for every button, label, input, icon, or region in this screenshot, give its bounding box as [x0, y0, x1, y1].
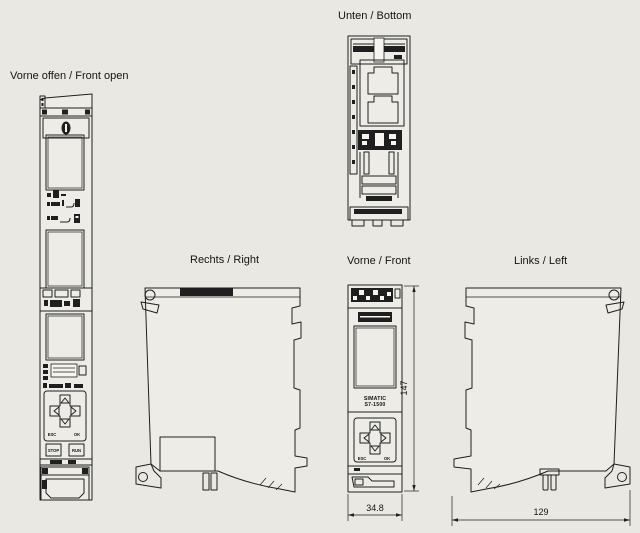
foot-left — [203, 473, 209, 490]
brand-text-line2: S7-1500 — [364, 402, 385, 408]
width-dimension-value: 34.8 — [366, 503, 384, 513]
label-front-open: Vorne offen / Front open — [10, 70, 128, 82]
module-body: ESC OK STOP RUN — [40, 94, 92, 500]
label-front: Vorne / Front — [347, 255, 411, 267]
label-left: Links / Left — [514, 255, 567, 267]
ok-key-label: OK — [74, 432, 80, 437]
power-connector — [358, 130, 402, 150]
foot-right — [211, 473, 217, 490]
dimensional-drawing-canvas: Vorne offen / Front open Unten / Bottom … — [0, 0, 640, 533]
run-key-label: RUN — [72, 448, 81, 453]
stop-key-label: STOP — [48, 448, 60, 453]
label-bar — [358, 312, 392, 322]
left-view-drawing: 129 — [448, 278, 638, 533]
esc-key-label: ESC — [48, 432, 57, 437]
esc-key-label: ESC — [358, 456, 367, 461]
width-dimension: 34.8 — [348, 494, 402, 521]
depth-dimension-value: 129 — [533, 507, 548, 517]
right-view-drawing — [130, 278, 320, 506]
ok-key-label: OK — [384, 456, 390, 461]
module-right-profile — [136, 288, 307, 492]
module-front: SIMATIC S7-1500 ESC OK — [348, 285, 402, 492]
module-bottom — [348, 36, 410, 226]
label-right: Rechts / Right — [190, 254, 259, 266]
module-left-profile — [454, 288, 630, 492]
siemens-label-bar — [180, 288, 233, 296]
height-dimension-value: 147 — [399, 380, 409, 395]
label-bottom: Unten / Bottom — [338, 10, 411, 22]
bottom-view-drawing — [344, 28, 414, 228]
front-open-view-drawing: ESC OK STOP RUN — [30, 85, 100, 505]
depth-dimension: 129 — [452, 490, 630, 526]
front-view-drawing: SIMATIC S7-1500 ESC OK — [340, 278, 430, 528]
